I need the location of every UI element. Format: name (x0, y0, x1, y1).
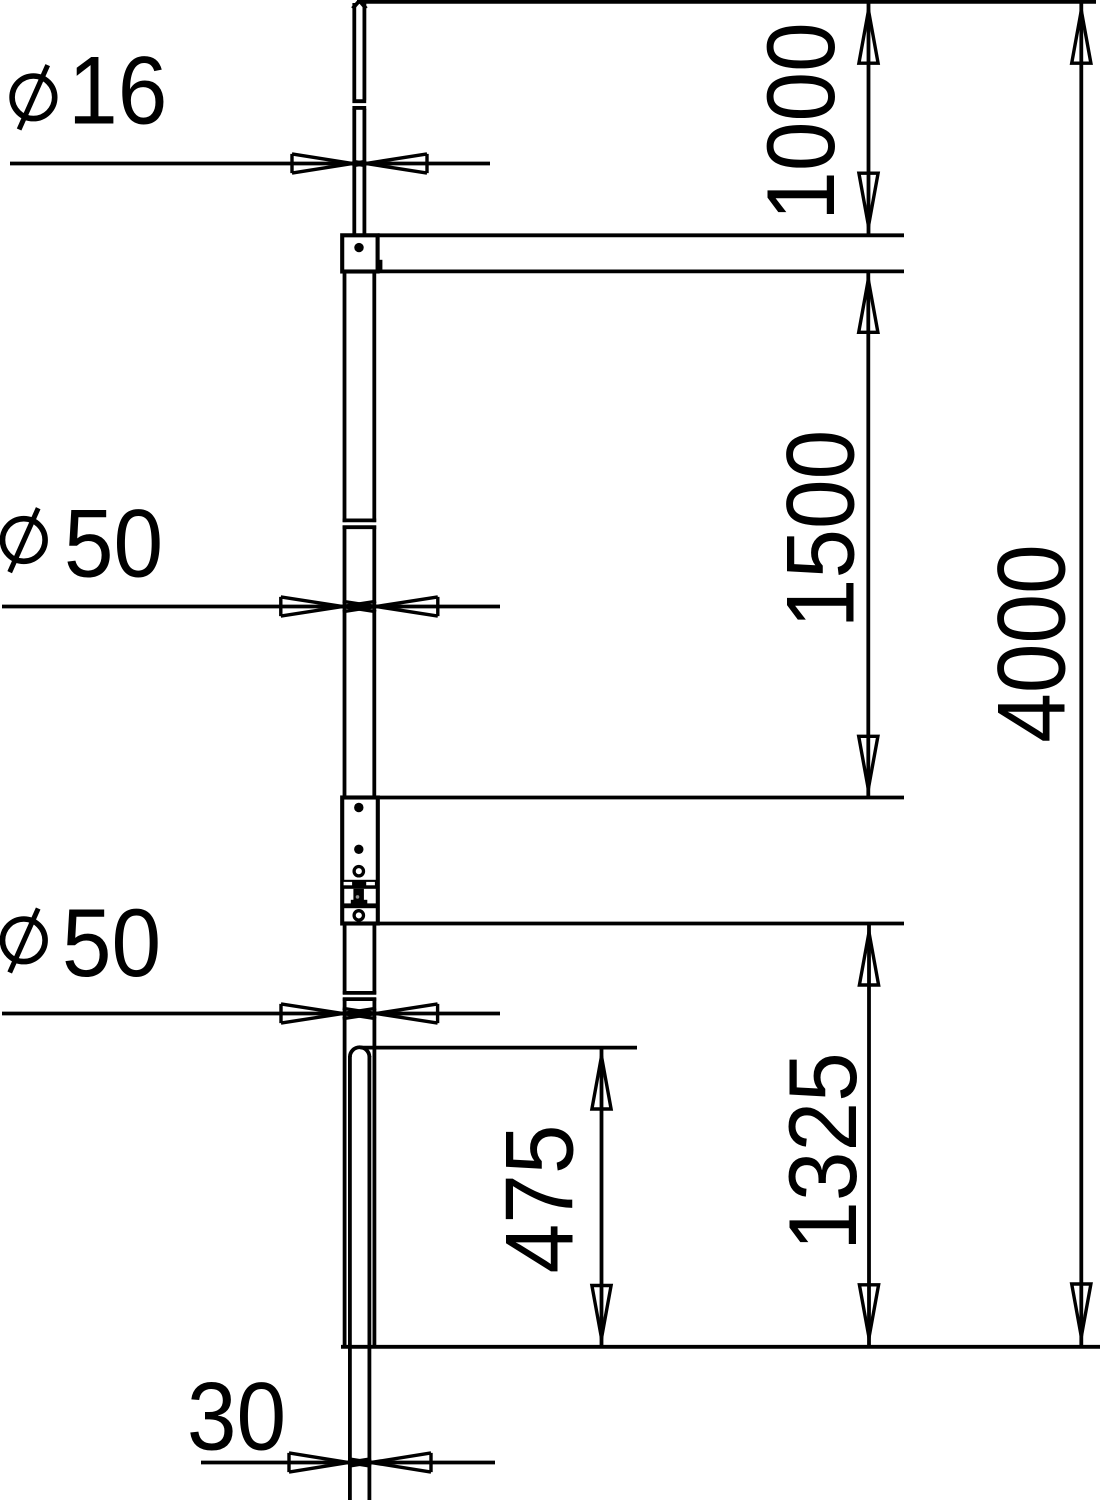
svg-text:50: 50 (62, 889, 161, 997)
svg-text:30: 30 (187, 1362, 286, 1470)
svg-text:50: 50 (64, 489, 163, 597)
svg-text:1000: 1000 (747, 22, 855, 221)
svg-text:4000: 4000 (977, 544, 1085, 743)
svg-text:16: 16 (68, 36, 167, 144)
svg-text:475: 475 (485, 1125, 593, 1274)
svg-text:1500: 1500 (766, 430, 874, 629)
svg-text:1325: 1325 (769, 1052, 877, 1251)
